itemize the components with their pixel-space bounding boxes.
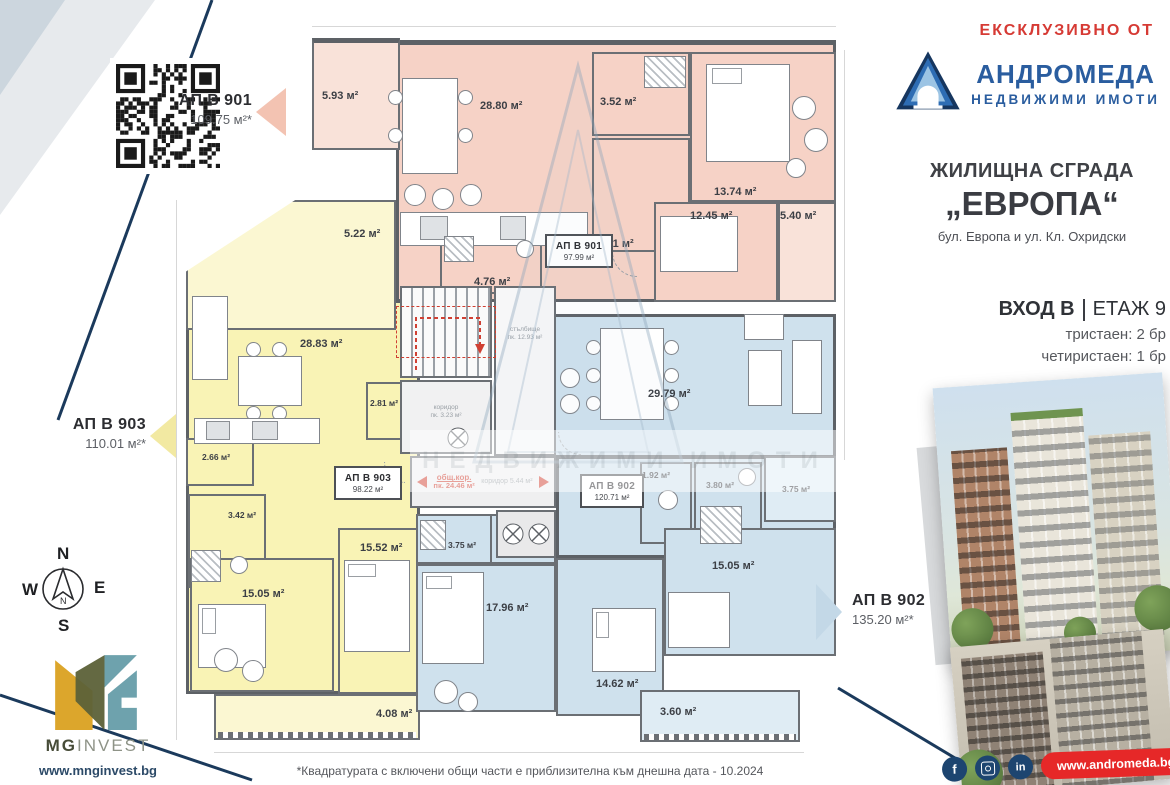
stool bbox=[560, 394, 580, 414]
dimension-line bbox=[844, 50, 845, 460]
coffee-table bbox=[748, 350, 782, 406]
render-tower bbox=[1011, 414, 1099, 644]
corridor-arrow-right bbox=[539, 476, 549, 488]
room-label: 15.05 м² bbox=[712, 560, 754, 572]
stool bbox=[404, 184, 426, 206]
dining-table bbox=[238, 356, 302, 406]
unit-mix-1: тристаен: 2 бр bbox=[898, 326, 1166, 343]
pillow bbox=[426, 576, 452, 589]
kitchen-appliance bbox=[206, 421, 230, 440]
sink bbox=[230, 556, 248, 574]
sink bbox=[738, 468, 756, 486]
room-label: 3.52 м² bbox=[600, 96, 636, 108]
building-type: ЖИЛИЩНА СГРАДА bbox=[898, 160, 1166, 183]
divider bbox=[1083, 299, 1085, 321]
agency-name: АНДРОМЕДА bbox=[971, 59, 1160, 90]
room-label: 3.60 м² bbox=[660, 706, 696, 718]
dimension-line bbox=[176, 200, 177, 740]
compass-east-label: E bbox=[94, 578, 105, 598]
stool bbox=[560, 368, 580, 388]
chair bbox=[458, 90, 473, 105]
chair bbox=[586, 396, 601, 411]
corridor-secondary: коридор 5.44 м² bbox=[481, 478, 532, 486]
chair bbox=[272, 342, 287, 357]
room-label: 3.42 м² bbox=[228, 510, 256, 520]
chair bbox=[458, 692, 478, 712]
elevator-icon bbox=[498, 512, 554, 556]
building-address: бул. Европа и ул. Кл. Охридски bbox=[898, 229, 1166, 244]
exclusive-label: ЕКСКЛУЗИВНО ОТ bbox=[980, 22, 1154, 40]
flyer-canvas: ЕКСКЛУЗИВНО ОТ АНДРОМЕДА НЕДВИЖИМИ ИМОТИ… bbox=[0, 0, 1170, 785]
pillow bbox=[348, 564, 376, 577]
room-label: 4.08 м² bbox=[376, 708, 412, 720]
callout-ap903: АП В 903 110.01 м²* bbox=[0, 416, 146, 451]
dining-table bbox=[600, 328, 664, 420]
room-label: 3.75 м² bbox=[782, 484, 810, 494]
svg-text:N: N bbox=[60, 596, 67, 606]
chair bbox=[434, 680, 458, 704]
area-disclaimer: *Квадратурата с включени общи части е пр… bbox=[210, 764, 850, 778]
compass-rose-icon: N bbox=[40, 566, 86, 612]
compass-west-label: W bbox=[22, 580, 38, 600]
project-block: ЖИЛИЩНА СГРАДА „ЕВРОПА“ бул. Европа и ул… bbox=[898, 160, 1166, 244]
room-label: 1.92 м² bbox=[642, 470, 670, 480]
chair bbox=[458, 128, 473, 143]
chair bbox=[246, 342, 261, 357]
room-label: 3.75 м² bbox=[448, 540, 476, 550]
chair bbox=[804, 128, 828, 152]
armchair bbox=[744, 314, 784, 340]
room-label: 5.22 м² bbox=[344, 228, 380, 240]
room-label: 5.40 м² bbox=[780, 210, 816, 222]
bed bbox=[660, 216, 738, 272]
chair bbox=[388, 128, 403, 143]
room-label: 2.81 м² bbox=[370, 398, 398, 408]
dimension-line bbox=[214, 752, 804, 753]
toilet bbox=[658, 490, 678, 510]
balcony-railing bbox=[218, 732, 416, 738]
stair-flight-marker bbox=[396, 306, 496, 358]
pillow bbox=[712, 68, 742, 84]
lobby-label: коридор пк. 3.23 м² bbox=[402, 404, 490, 421]
chair bbox=[214, 648, 238, 672]
chair bbox=[786, 158, 806, 178]
callout-ap902: АП В 902 135.20 м²* bbox=[852, 592, 1002, 627]
mginvest-logo-icon bbox=[48, 650, 144, 730]
room-label: 14.62 м² bbox=[596, 678, 638, 690]
stairs-label: стълбище пк. 12.93 м² bbox=[496, 326, 554, 343]
chair bbox=[586, 340, 601, 355]
shower bbox=[191, 550, 221, 582]
room-ap903-hallway bbox=[186, 438, 254, 486]
brand-header: ЕКСКЛУЗИВНО ОТ АНДРОМЕДА НЕДВИЖИМИ ИМОТИ bbox=[868, 22, 1160, 122]
sofa bbox=[792, 340, 822, 414]
kitchen-appliance bbox=[500, 216, 526, 240]
vent-icon bbox=[446, 426, 470, 450]
toilet bbox=[516, 240, 534, 258]
compass-north-label: N bbox=[57, 544, 69, 564]
building-name: „ЕВРОПА“ bbox=[898, 185, 1166, 223]
balcony-railing bbox=[644, 734, 796, 740]
unit-mix-2: четиристаен: 1 бр bbox=[898, 348, 1166, 365]
room-label: 28.80 м² bbox=[480, 100, 522, 112]
room-label: 17.96 м² bbox=[486, 602, 528, 614]
kitchen-appliance bbox=[252, 421, 278, 440]
elevator-shaft bbox=[496, 510, 556, 558]
shower bbox=[444, 236, 474, 262]
room-label: 15.52 м² bbox=[360, 542, 402, 554]
chair bbox=[664, 340, 679, 355]
mginvest-name: MGINVEST bbox=[24, 736, 172, 756]
compass-south-label: S bbox=[58, 616, 69, 636]
room-label: 4.76 м² bbox=[474, 276, 510, 288]
entrance-label: ВХОД В bbox=[999, 298, 1075, 321]
facebook-icon[interactable]: f bbox=[942, 756, 968, 782]
room-label: 5.93 м² bbox=[322, 90, 358, 102]
sofa bbox=[192, 296, 228, 380]
shower bbox=[644, 56, 686, 88]
pillow bbox=[202, 608, 216, 634]
stair-landing bbox=[494, 286, 556, 456]
stool bbox=[460, 184, 482, 206]
common-corridor: общ.кор. пк. 24.46 м² коридор 5.44 м² bbox=[410, 456, 556, 508]
shower bbox=[420, 520, 446, 550]
shower bbox=[700, 506, 742, 544]
mginvest-site[interactable]: www.mnginvest.bg bbox=[10, 763, 186, 778]
instagram-icon[interactable] bbox=[975, 755, 1001, 781]
room-label: 13.74 м² bbox=[714, 186, 756, 198]
room-label: 2.66 м² bbox=[202, 452, 230, 462]
andromeda-logo-icon bbox=[895, 44, 961, 122]
pillow bbox=[596, 612, 609, 638]
callout-arrow-ap902 bbox=[816, 584, 842, 640]
corridor-area: пк. 24.46 м² bbox=[433, 482, 474, 491]
corridor-arrow-left bbox=[417, 476, 427, 488]
room-label: 15.05 м² bbox=[242, 588, 284, 600]
agency-subtitle: НЕДВИЖИМИ ИМОТИ bbox=[971, 92, 1160, 107]
andromeda-site-banner[interactable]: www.andromeda.bg bbox=[1041, 747, 1170, 779]
entrance-block: ВХОД В ЕТАЖ 9 тристаен: 2 бр четиристаен… bbox=[898, 298, 1166, 365]
chair bbox=[242, 660, 264, 682]
dimension-line bbox=[312, 26, 836, 27]
room-label: 28.83 м² bbox=[300, 338, 342, 350]
chair bbox=[586, 368, 601, 383]
dining-table bbox=[402, 78, 458, 174]
callout-ap901: АП В 901 109.75 м²* bbox=[60, 92, 252, 127]
room-label: 3.80 м² bbox=[706, 480, 734, 490]
infobox-ap901: АП В 901 97.99 м² bbox=[545, 234, 613, 268]
room-label: 29.79 м² bbox=[648, 388, 690, 400]
chair bbox=[792, 96, 816, 120]
room-label: 12.45 м² bbox=[690, 210, 732, 222]
bed bbox=[668, 592, 730, 648]
infobox-ap902: АП В 902 120.71 м² bbox=[580, 474, 644, 508]
callout-arrow-ap901 bbox=[256, 88, 286, 136]
stool bbox=[432, 188, 454, 210]
infobox-ap903: АП В 903 98.22 м² bbox=[334, 466, 402, 500]
chair bbox=[388, 90, 403, 105]
floor-label: ЕТАЖ 9 bbox=[1093, 298, 1166, 321]
linkedin-icon[interactable]: in bbox=[1008, 754, 1034, 780]
callout-arrow-ap903 bbox=[150, 414, 176, 458]
chair bbox=[664, 368, 679, 383]
